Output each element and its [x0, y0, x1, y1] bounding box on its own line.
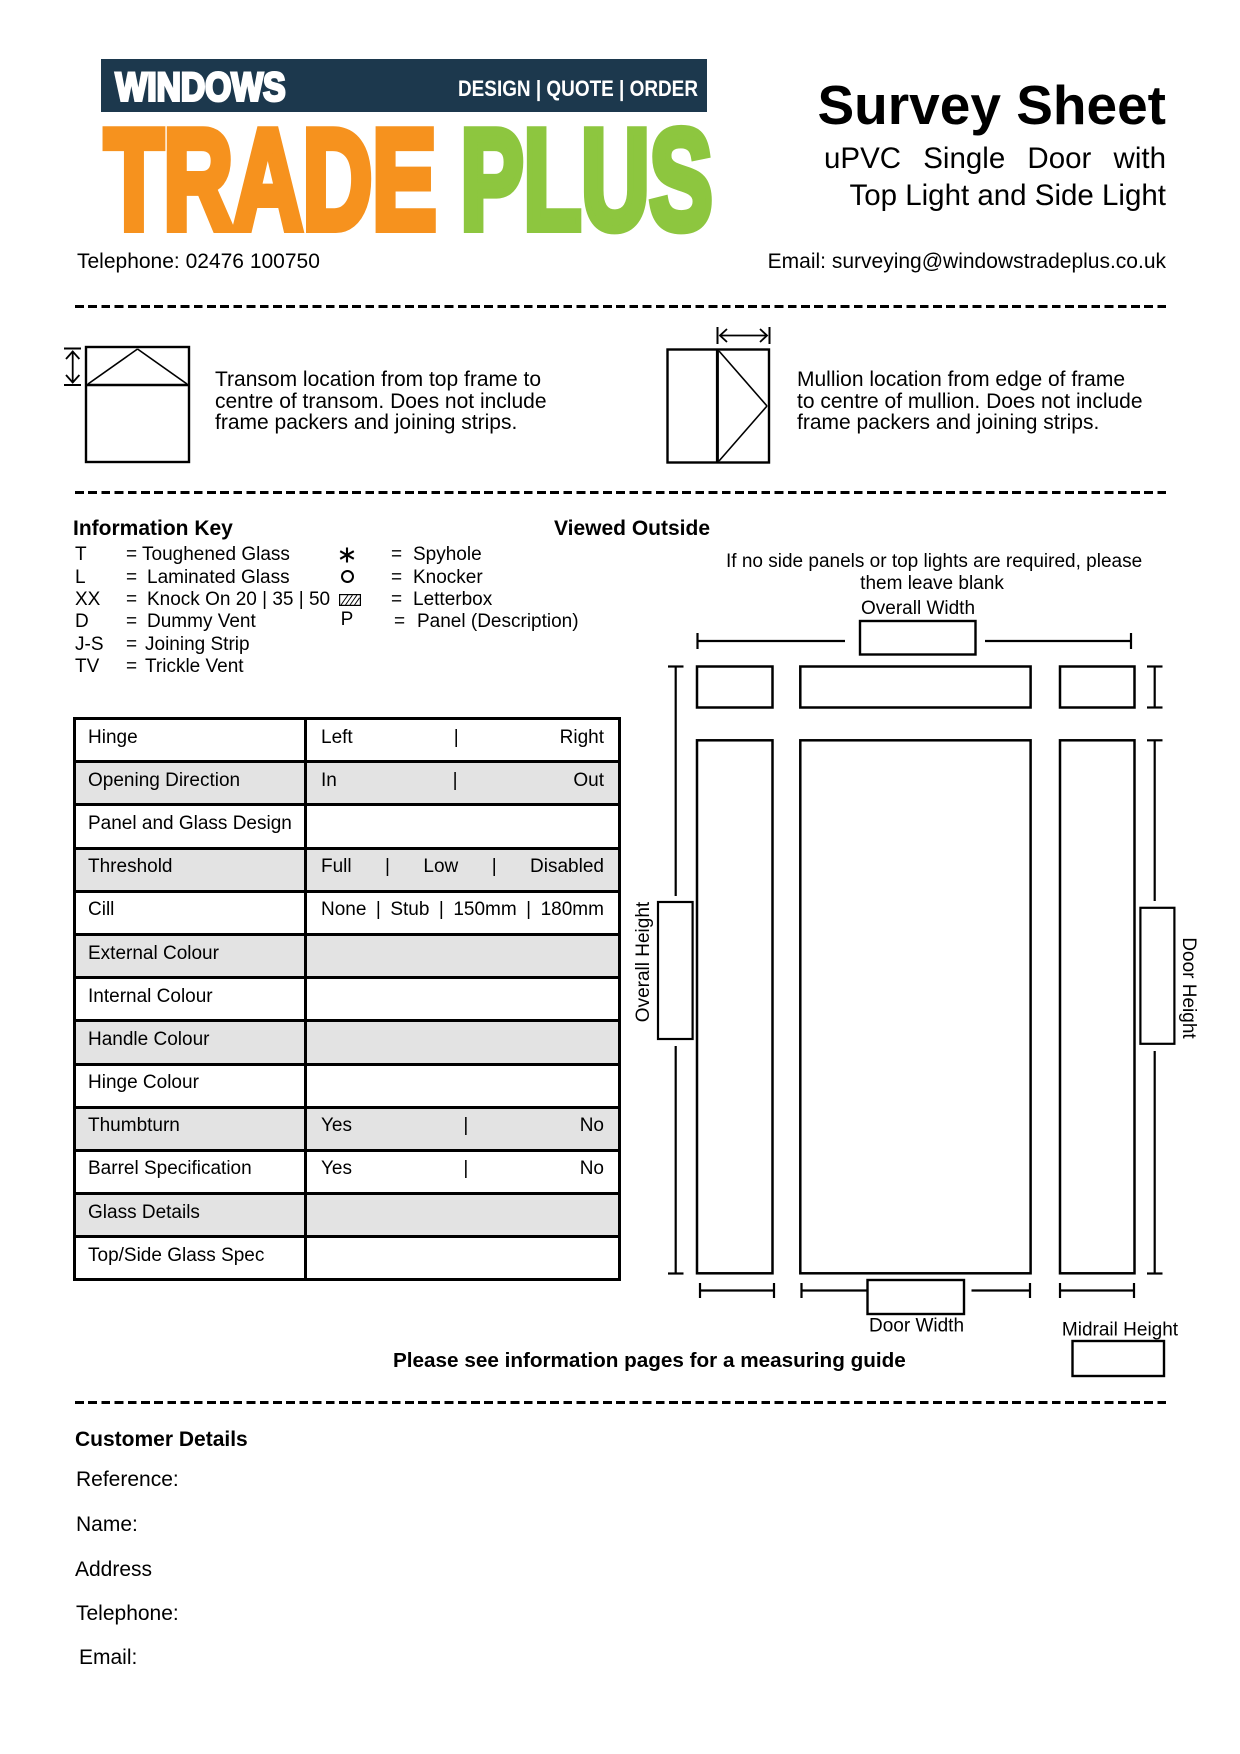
svg-text:Midrail Height: Midrail Height — [1062, 1320, 1179, 1341]
svg-text:DESIGN | QUOTE | ORDER: DESIGN | QUOTE | ORDER — [458, 76, 698, 101]
svg-text:Overall Height: Overall Height — [633, 901, 654, 1022]
svg-text:Door Height: Door Height — [1178, 937, 1199, 1039]
svg-text:TRADE: TRADE — [105, 101, 437, 260]
svg-text:Door Width: Door Width — [869, 1316, 964, 1337]
svg-text:PLUS: PLUS — [461, 101, 713, 260]
